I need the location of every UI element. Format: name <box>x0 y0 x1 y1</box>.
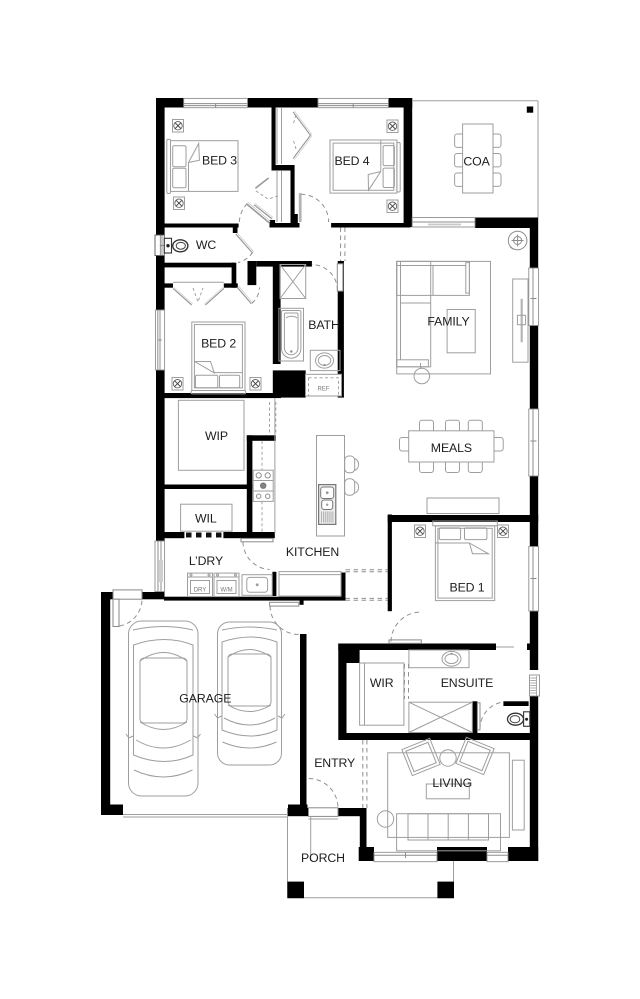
svg-text:LIVING: LIVING <box>432 776 472 790</box>
svg-text:ENSUITE: ENSUITE <box>441 676 494 690</box>
svg-text:ENTRY: ENTRY <box>314 756 355 770</box>
svg-text:WIP: WIP <box>205 429 228 443</box>
svg-text:BED 4: BED 4 <box>334 154 369 168</box>
svg-text:DRY: DRY <box>194 588 207 594</box>
svg-text:REF: REF <box>318 387 330 393</box>
svg-text:GARAGE: GARAGE <box>179 692 231 706</box>
svg-text:BED 1: BED 1 <box>449 581 484 595</box>
svg-text:KITCHEN: KITCHEN <box>286 545 339 559</box>
svg-text:MEALS: MEALS <box>431 441 472 455</box>
svg-text:WIR: WIR <box>370 676 394 690</box>
svg-text:BED 3: BED 3 <box>202 154 237 168</box>
svg-text:FAMILY: FAMILY <box>427 315 469 329</box>
svg-text:COA: COA <box>463 155 490 169</box>
svg-text:BED 2: BED 2 <box>201 337 236 351</box>
svg-text:L’DRY: L’DRY <box>189 554 223 568</box>
svg-text:WIL: WIL <box>195 512 217 526</box>
svg-text:PORCH: PORCH <box>301 851 345 865</box>
svg-text:BATH: BATH <box>308 318 339 332</box>
svg-text:W/M: W/M <box>220 588 232 594</box>
svg-text:WC: WC <box>196 238 217 252</box>
